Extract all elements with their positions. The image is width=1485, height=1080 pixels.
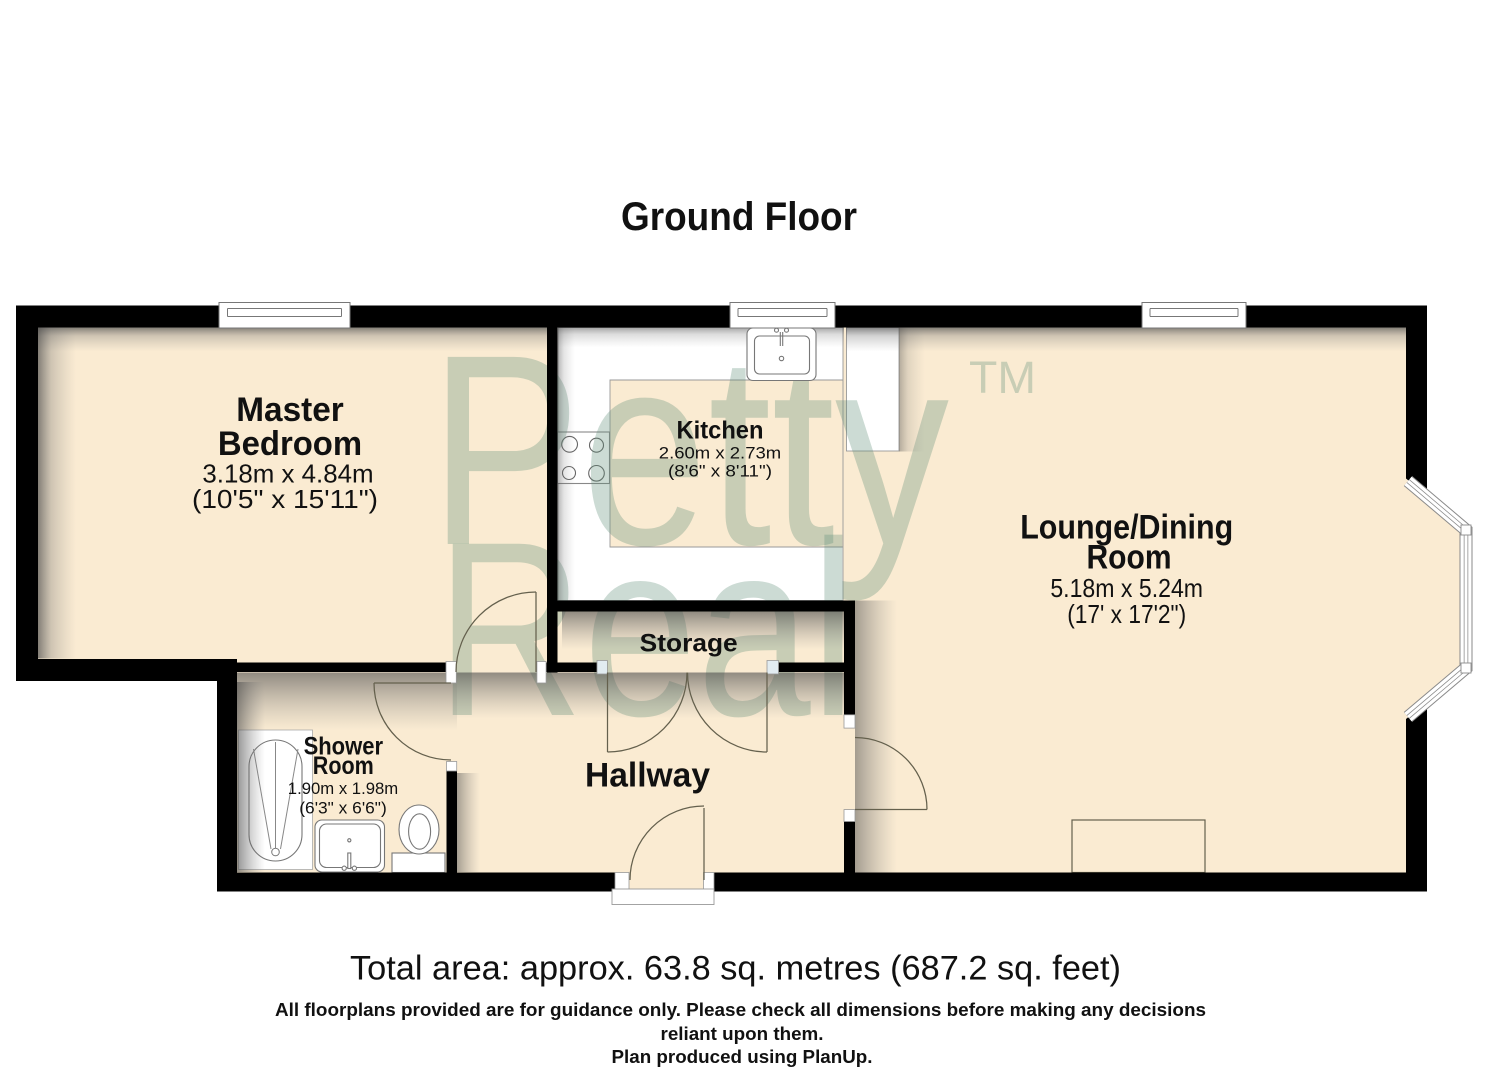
svg-text:Hallway: Hallway: [585, 756, 710, 794]
svg-text:Storage: Storage: [640, 629, 738, 657]
svg-text:(6'3" x 6'6"): (6'3" x 6'6"): [299, 799, 387, 818]
svg-text:Master: Master: [236, 391, 344, 429]
svg-text:reliant upon them.: reliant upon them.: [661, 1024, 824, 1044]
svg-text:2.60m x 2.73m: 2.60m x 2.73m: [659, 444, 781, 463]
svg-text:Plan produced using PlanUp.: Plan produced using PlanUp.: [612, 1047, 873, 1067]
svg-text:Bedroom: Bedroom: [218, 425, 362, 463]
svg-text:TM: TM: [969, 352, 1036, 403]
svg-text:(17' x 17'2"): (17' x 17'2"): [1067, 599, 1186, 629]
svg-text:(10'5" x 15'11"): (10'5" x 15'11"): [192, 484, 378, 514]
svg-text:Room: Room: [1087, 539, 1172, 577]
svg-text:Kitchen: Kitchen: [677, 417, 764, 445]
svg-text:1.90m x 1.98m: 1.90m x 1.98m: [288, 779, 398, 798]
svg-text:All floorplans provided are fo: All floorplans provided are for guidance…: [275, 1000, 1206, 1020]
svg-text:Ground Floor: Ground Floor: [621, 195, 857, 239]
svg-text:Room: Room: [313, 752, 374, 780]
svg-text:Total area: approx. 63.8 sq. m: Total area: approx. 63.8 sq. metres (687…: [350, 949, 1121, 987]
svg-text:(8'6" x 8'11"): (8'6" x 8'11"): [668, 462, 772, 481]
